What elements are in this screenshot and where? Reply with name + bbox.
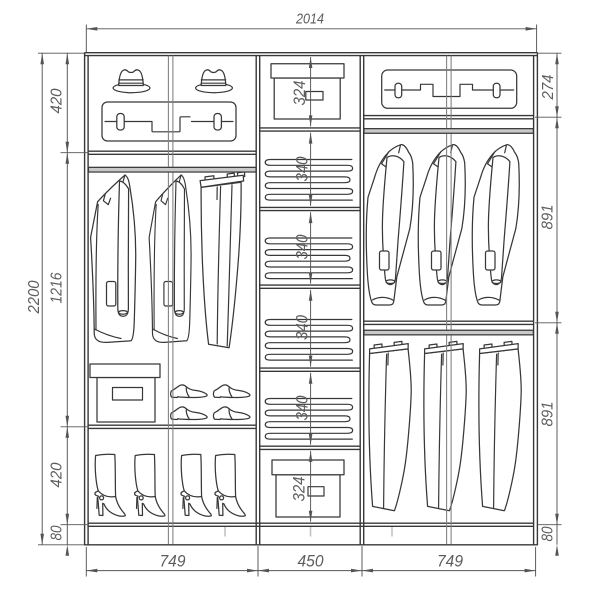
svg-text:80: 80 <box>49 525 66 540</box>
svg-text:420: 420 <box>49 88 66 113</box>
svg-text:420: 420 <box>49 462 66 487</box>
svg-text:1216: 1216 <box>49 272 66 303</box>
svg-text:340: 340 <box>294 234 312 260</box>
svg-text:891: 891 <box>540 205 557 230</box>
svg-text:340: 340 <box>294 314 312 340</box>
svg-text:2200: 2200 <box>26 280 43 314</box>
svg-text:340: 340 <box>294 156 312 182</box>
svg-text:340: 340 <box>294 395 312 421</box>
svg-text:274: 274 <box>540 74 557 100</box>
svg-text:749: 749 <box>437 553 463 571</box>
svg-text:324: 324 <box>291 477 309 502</box>
svg-text:80: 80 <box>540 526 557 541</box>
svg-text:891: 891 <box>540 402 557 427</box>
svg-text:324: 324 <box>291 81 309 106</box>
svg-text:749: 749 <box>160 553 186 571</box>
svg-text:2014: 2014 <box>295 11 324 28</box>
svg-text:450: 450 <box>298 553 325 571</box>
